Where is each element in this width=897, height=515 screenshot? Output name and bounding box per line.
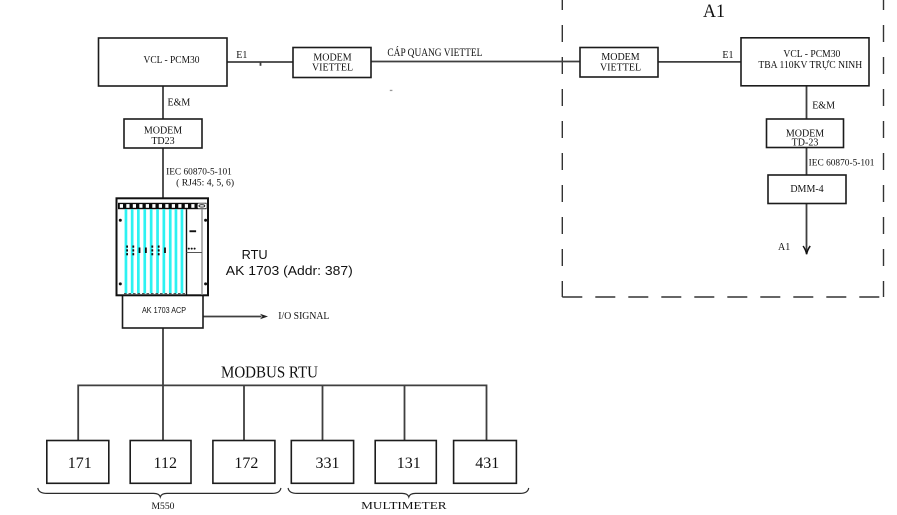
svg-text:TBA 110KV TRỰC NINH: TBA 110KV TRỰC NINH bbox=[758, 60, 862, 71]
svg-text:A1: A1 bbox=[703, 1, 725, 22]
svg-text:VIETTEL: VIETTEL bbox=[312, 63, 353, 74]
svg-text:( RJ45: 4, 5, 6): ( RJ45: 4, 5, 6) bbox=[176, 178, 234, 188]
svg-text:431: 431 bbox=[475, 455, 499, 472]
svg-text:E1: E1 bbox=[722, 50, 733, 61]
svg-text:A1: A1 bbox=[778, 242, 790, 253]
svg-text:MODEM: MODEM bbox=[601, 52, 639, 63]
svg-text:MODBUS RTU: MODBUS RTU bbox=[221, 362, 318, 381]
svg-text:CÁP QUANG VIETTEL: CÁP QUANG VIETTEL bbox=[387, 45, 482, 59]
svg-text:VCL - PCM30: VCL - PCM30 bbox=[144, 55, 200, 66]
svg-text:M550: M550 bbox=[152, 502, 175, 512]
svg-text:RTU: RTU bbox=[242, 247, 268, 262]
svg-text:VIETTEL: VIETTEL bbox=[600, 62, 641, 73]
svg-text:MULTIMETER: MULTIMETER bbox=[361, 501, 447, 512]
svg-text:131: 131 bbox=[397, 455, 421, 472]
svg-text:AK 1703 (Addr: 387): AK 1703 (Addr: 387) bbox=[226, 263, 353, 278]
svg-text:VCL - PCM30: VCL - PCM30 bbox=[783, 49, 840, 60]
svg-text:AK 1703 ACP: AK 1703 ACP bbox=[142, 305, 186, 315]
svg-text:DMM-4: DMM-4 bbox=[790, 184, 823, 195]
svg-text:TD23: TD23 bbox=[151, 136, 174, 147]
svg-text:331: 331 bbox=[316, 455, 340, 472]
svg-text:112: 112 bbox=[154, 455, 177, 472]
svg-text:171: 171 bbox=[68, 455, 92, 472]
svg-text:TD-23: TD-23 bbox=[792, 138, 819, 149]
svg-text:IEC 60870-5-101: IEC 60870-5-101 bbox=[166, 167, 232, 177]
svg-text:E&M: E&M bbox=[168, 98, 191, 109]
svg-text:E&M: E&M bbox=[812, 101, 835, 112]
svg-text:E1: E1 bbox=[236, 50, 247, 61]
svg-text:IEC 60870-5-101: IEC 60870-5-101 bbox=[809, 158, 875, 168]
svg-text:I/O SIGNAL: I/O SIGNAL bbox=[278, 311, 329, 322]
svg-text:172: 172 bbox=[234, 455, 258, 472]
